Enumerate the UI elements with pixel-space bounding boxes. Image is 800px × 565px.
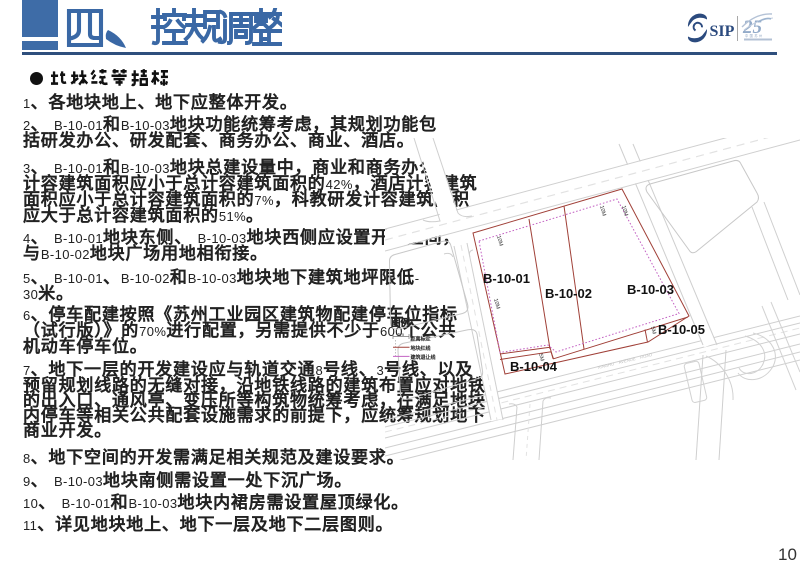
svg-text:B-10-02: B-10-02 bbox=[545, 286, 592, 301]
svg-text:B-10-05: B-10-05 bbox=[658, 322, 705, 337]
svg-text:地块红线: 地块红线 bbox=[411, 345, 431, 352]
svg-text:距离标定: 距离标定 bbox=[411, 336, 431, 343]
svg-text:5m: 5m bbox=[398, 332, 405, 338]
svg-text:图例: 图例 bbox=[391, 317, 410, 329]
svg-text:10M: 10M bbox=[495, 235, 504, 247]
svg-text:B-10-04: B-10-04 bbox=[510, 359, 558, 374]
svg-text:建筑退让线: 建筑退让线 bbox=[411, 354, 436, 361]
svg-text:10M: 10M bbox=[620, 205, 629, 217]
svg-text:中 国 苏 州: 中 国 苏 州 bbox=[745, 33, 763, 38]
svg-text:B-10-01: B-10-01 bbox=[483, 271, 530, 286]
svg-text:10M: 10M bbox=[598, 205, 607, 217]
svg-text:SIP: SIP bbox=[710, 23, 735, 40]
svg-text:10M: 10M bbox=[492, 298, 501, 310]
svg-text:B-10-03: B-10-03 bbox=[627, 282, 674, 297]
svg-text:5M: 5M bbox=[649, 326, 657, 335]
